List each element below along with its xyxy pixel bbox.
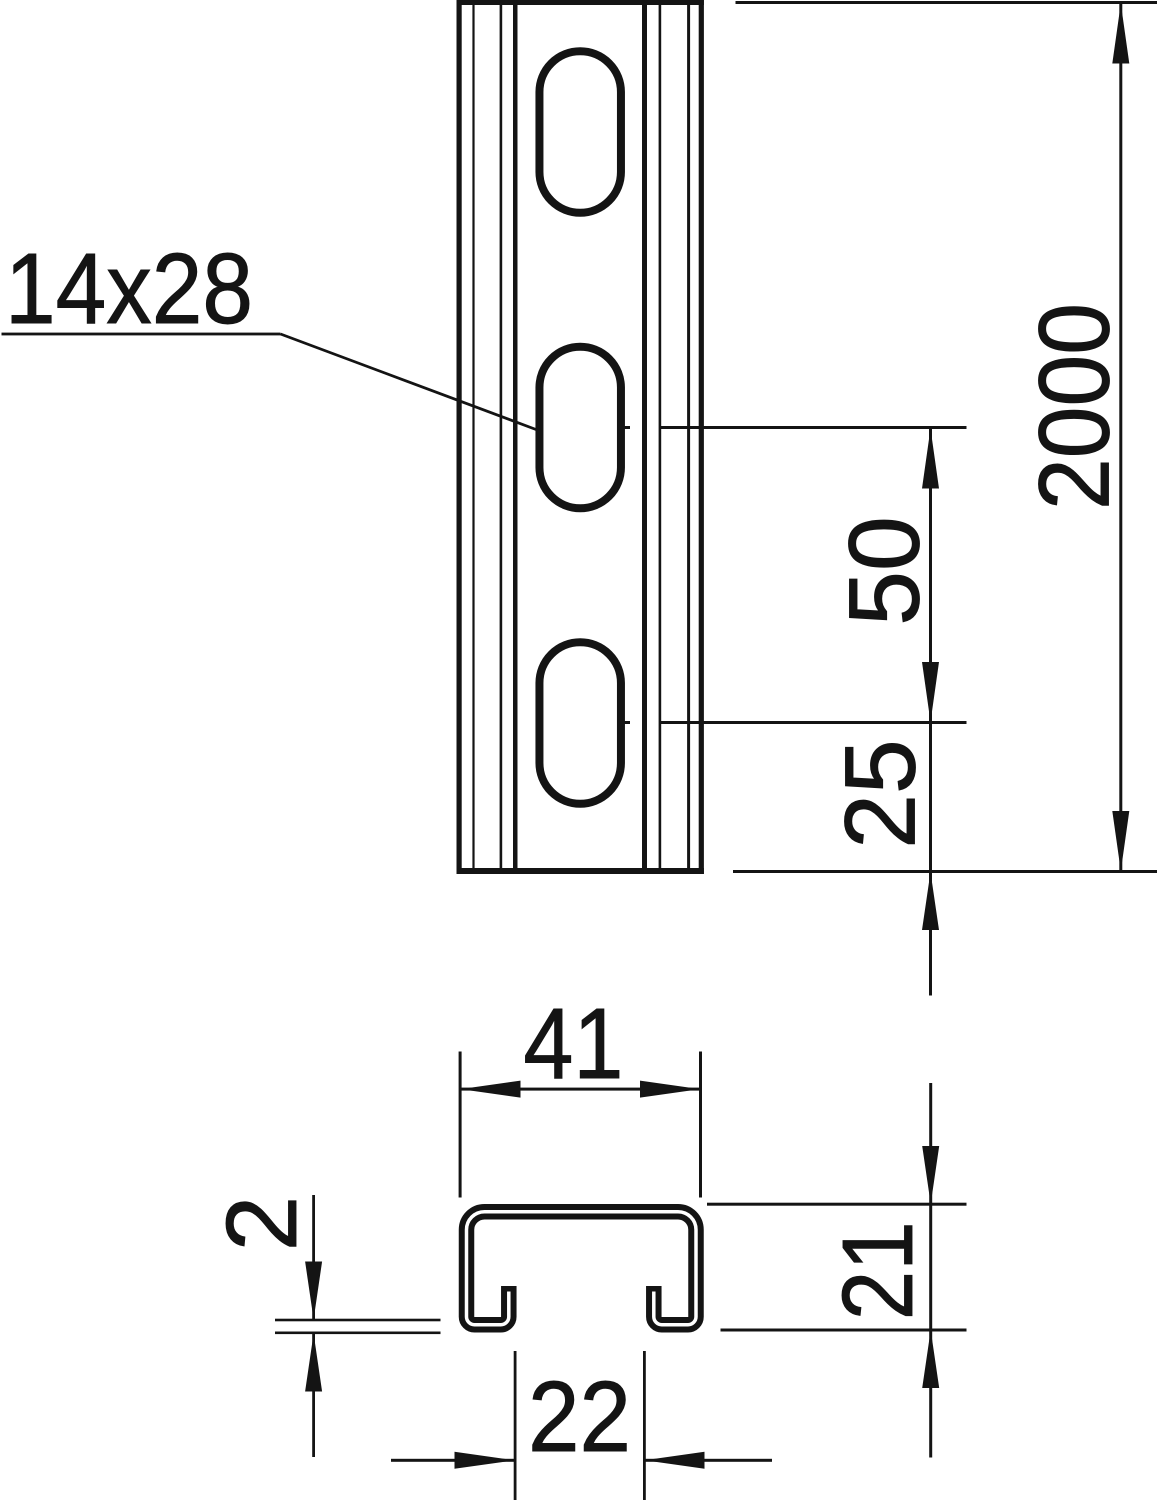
svg-text:21: 21 bbox=[822, 1221, 934, 1320]
svg-text:41: 41 bbox=[523, 988, 623, 1100]
svg-text:50: 50 bbox=[828, 516, 940, 626]
svg-text:25: 25 bbox=[825, 739, 937, 849]
svg-text:2: 2 bbox=[206, 1196, 318, 1252]
svg-text:2000: 2000 bbox=[1019, 303, 1131, 510]
svg-text:22: 22 bbox=[528, 1361, 631, 1473]
svg-text:14x28: 14x28 bbox=[5, 233, 253, 345]
